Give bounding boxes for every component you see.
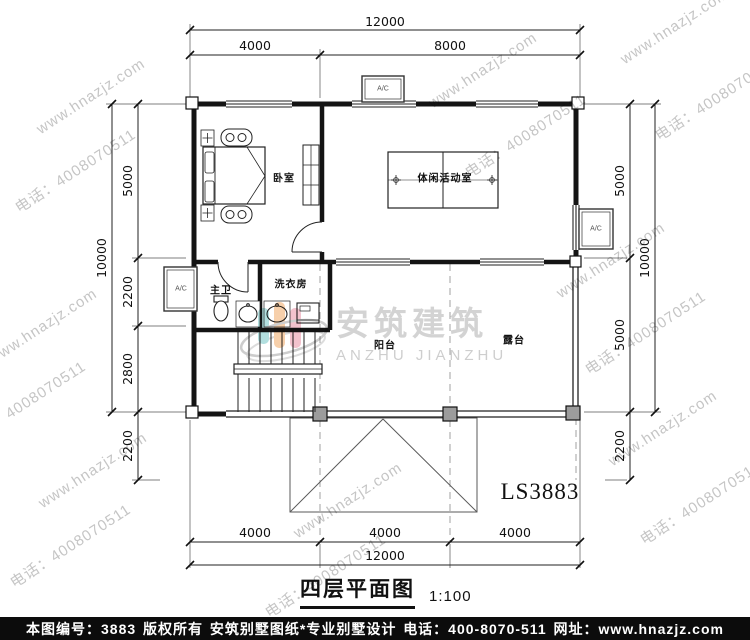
drawing-scale: 1:100 xyxy=(429,588,472,609)
model-code: LS3883 xyxy=(501,479,580,505)
blueprint-page: 12000 4000 8000 4000 4000 4000 12000 500… xyxy=(0,0,750,640)
footer-site: 网址：www.hnazjz.com xyxy=(553,619,724,639)
logo-text: 安筑建筑 ANZHU JIANZHU xyxy=(336,307,507,364)
dim-top-right: 8000 xyxy=(434,38,466,53)
room-label-master-bath: 主卫 xyxy=(210,282,232,297)
footer-brand: 安筑别墅图纸*专业别墅设计 xyxy=(210,619,396,639)
dim-top-left: 4000 xyxy=(239,38,271,53)
drawing-title-block: 四层平面图 1:100 xyxy=(300,573,472,609)
dim-left-1: 5000 xyxy=(120,165,135,197)
drawing-title: 四层平面图 xyxy=(300,573,415,609)
footer-copyright: 版权所有 xyxy=(143,619,203,639)
logo-cn: 安筑建筑 xyxy=(336,307,507,340)
dim-left-2: 2200 xyxy=(120,276,135,308)
dim-top-total: 12000 xyxy=(365,14,405,29)
roof-outline xyxy=(290,418,477,512)
room-label-bedroom: 卧室 xyxy=(273,170,295,185)
bed xyxy=(203,147,265,204)
ac-label-top: A/C xyxy=(377,86,389,93)
wardrobe xyxy=(303,145,319,205)
toilet xyxy=(214,296,228,321)
footer-phone: 电话：400-8070-511 xyxy=(403,619,546,639)
footer-bar: 本图编号：3883 版权所有 安筑别墅图纸*专业别墅设计 电话：400-8070… xyxy=(0,617,750,640)
ac-label-right: A/C xyxy=(590,226,602,233)
dim-bottom-1: 4000 xyxy=(239,525,271,540)
dim-bottom-3: 4000 xyxy=(499,525,531,540)
ac-label-left: A/C xyxy=(175,286,187,293)
dim-left-3: 2800 xyxy=(120,353,135,385)
dim-right-1: 5000 xyxy=(612,165,627,197)
dim-left-total: 10000 xyxy=(94,238,109,278)
logo-en: ANZHU JIANZHU xyxy=(336,347,507,364)
company-logo: 安筑建筑 ANZHU JIANZHU xyxy=(236,296,507,374)
footer-number: 本图编号：3883 xyxy=(26,619,136,639)
room-label-laundry: 洗衣房 xyxy=(275,276,308,291)
logo-swoosh-icon xyxy=(236,296,332,374)
